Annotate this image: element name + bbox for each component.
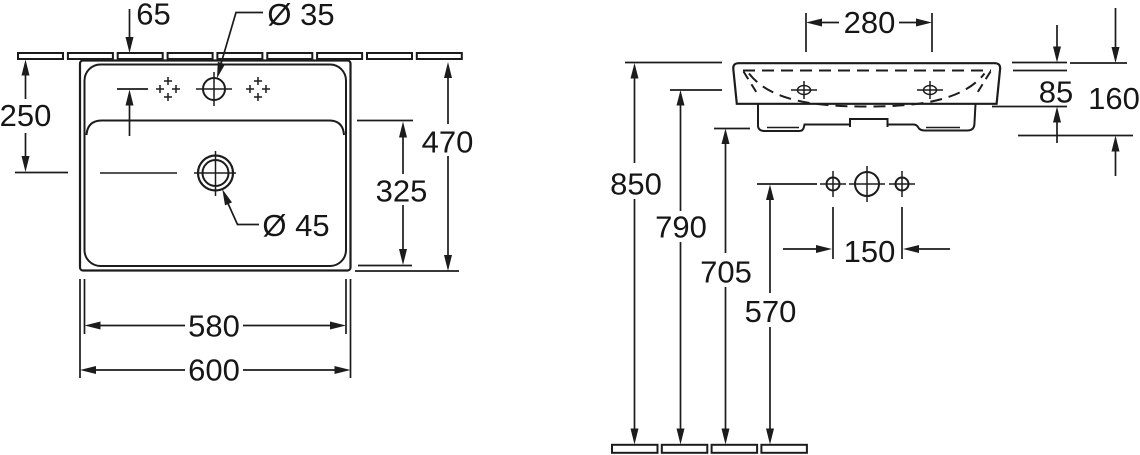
dim-790: 790 (655, 90, 707, 445)
outlet-hole-group (757, 166, 915, 202)
wall-tile (118, 53, 163, 59)
washbasin-dimension-drawing: 65 Ø 35 250 470 325 (0, 0, 1140, 455)
dim-570: 570 (745, 185, 797, 445)
wall-tile (18, 53, 63, 59)
technical-drawing-page: 65 Ø 35 250 470 325 (0, 0, 1140, 455)
dim-280: 280 (806, 5, 932, 52)
dim-325-label: 325 (376, 174, 428, 209)
dim-570-label: 570 (745, 294, 797, 329)
dim-250-label: 250 (0, 98, 51, 133)
basin-front-outline (733, 63, 1000, 104)
dim-470-label: 470 (422, 125, 474, 160)
floor-tile (712, 445, 758, 453)
dim-705-label: 705 (700, 255, 752, 290)
wall-tile (68, 53, 113, 59)
dim-470: 470 (355, 62, 473, 271)
dim-250: 250 (0, 60, 68, 173)
dim-85: 85 (1039, 25, 1073, 143)
wall-tile (417, 53, 462, 59)
wall-tile (168, 53, 213, 59)
dim-280-label: 280 (844, 5, 896, 40)
floor-tile (662, 445, 708, 453)
dim-705: 705 (700, 129, 752, 445)
dim-150: 150 (783, 207, 950, 269)
dim-85-label: 85 (1039, 75, 1073, 110)
dim-580: 580 (85, 279, 347, 344)
wall-hatch (18, 53, 462, 59)
dim-850-label: 850 (610, 167, 662, 202)
dim-580-label: 580 (188, 309, 240, 344)
dim-160: 160 (1088, 8, 1140, 176)
wall-tile (317, 53, 362, 59)
floor-tile (761, 445, 807, 453)
top-view: 65 Ø 35 250 470 325 (0, 0, 473, 388)
floor-tile (612, 445, 658, 453)
dim-45-label: Ø 45 (262, 208, 329, 243)
wall-tile (267, 53, 312, 59)
dim-850: 850 (610, 63, 662, 445)
dim-150-label: 150 (844, 234, 896, 269)
dim-600-label: 600 (188, 353, 240, 388)
dim-35-label: Ø 35 (267, 0, 334, 32)
dim-160-label: 160 (1088, 81, 1140, 116)
dim-325: 325 (357, 121, 427, 266)
front-view: 280 85 160 (610, 5, 1140, 453)
wall-tile (367, 53, 412, 59)
dim-790-label: 790 (655, 210, 707, 245)
floor-hatch (612, 445, 807, 453)
dim-65-label: 65 (136, 0, 170, 32)
